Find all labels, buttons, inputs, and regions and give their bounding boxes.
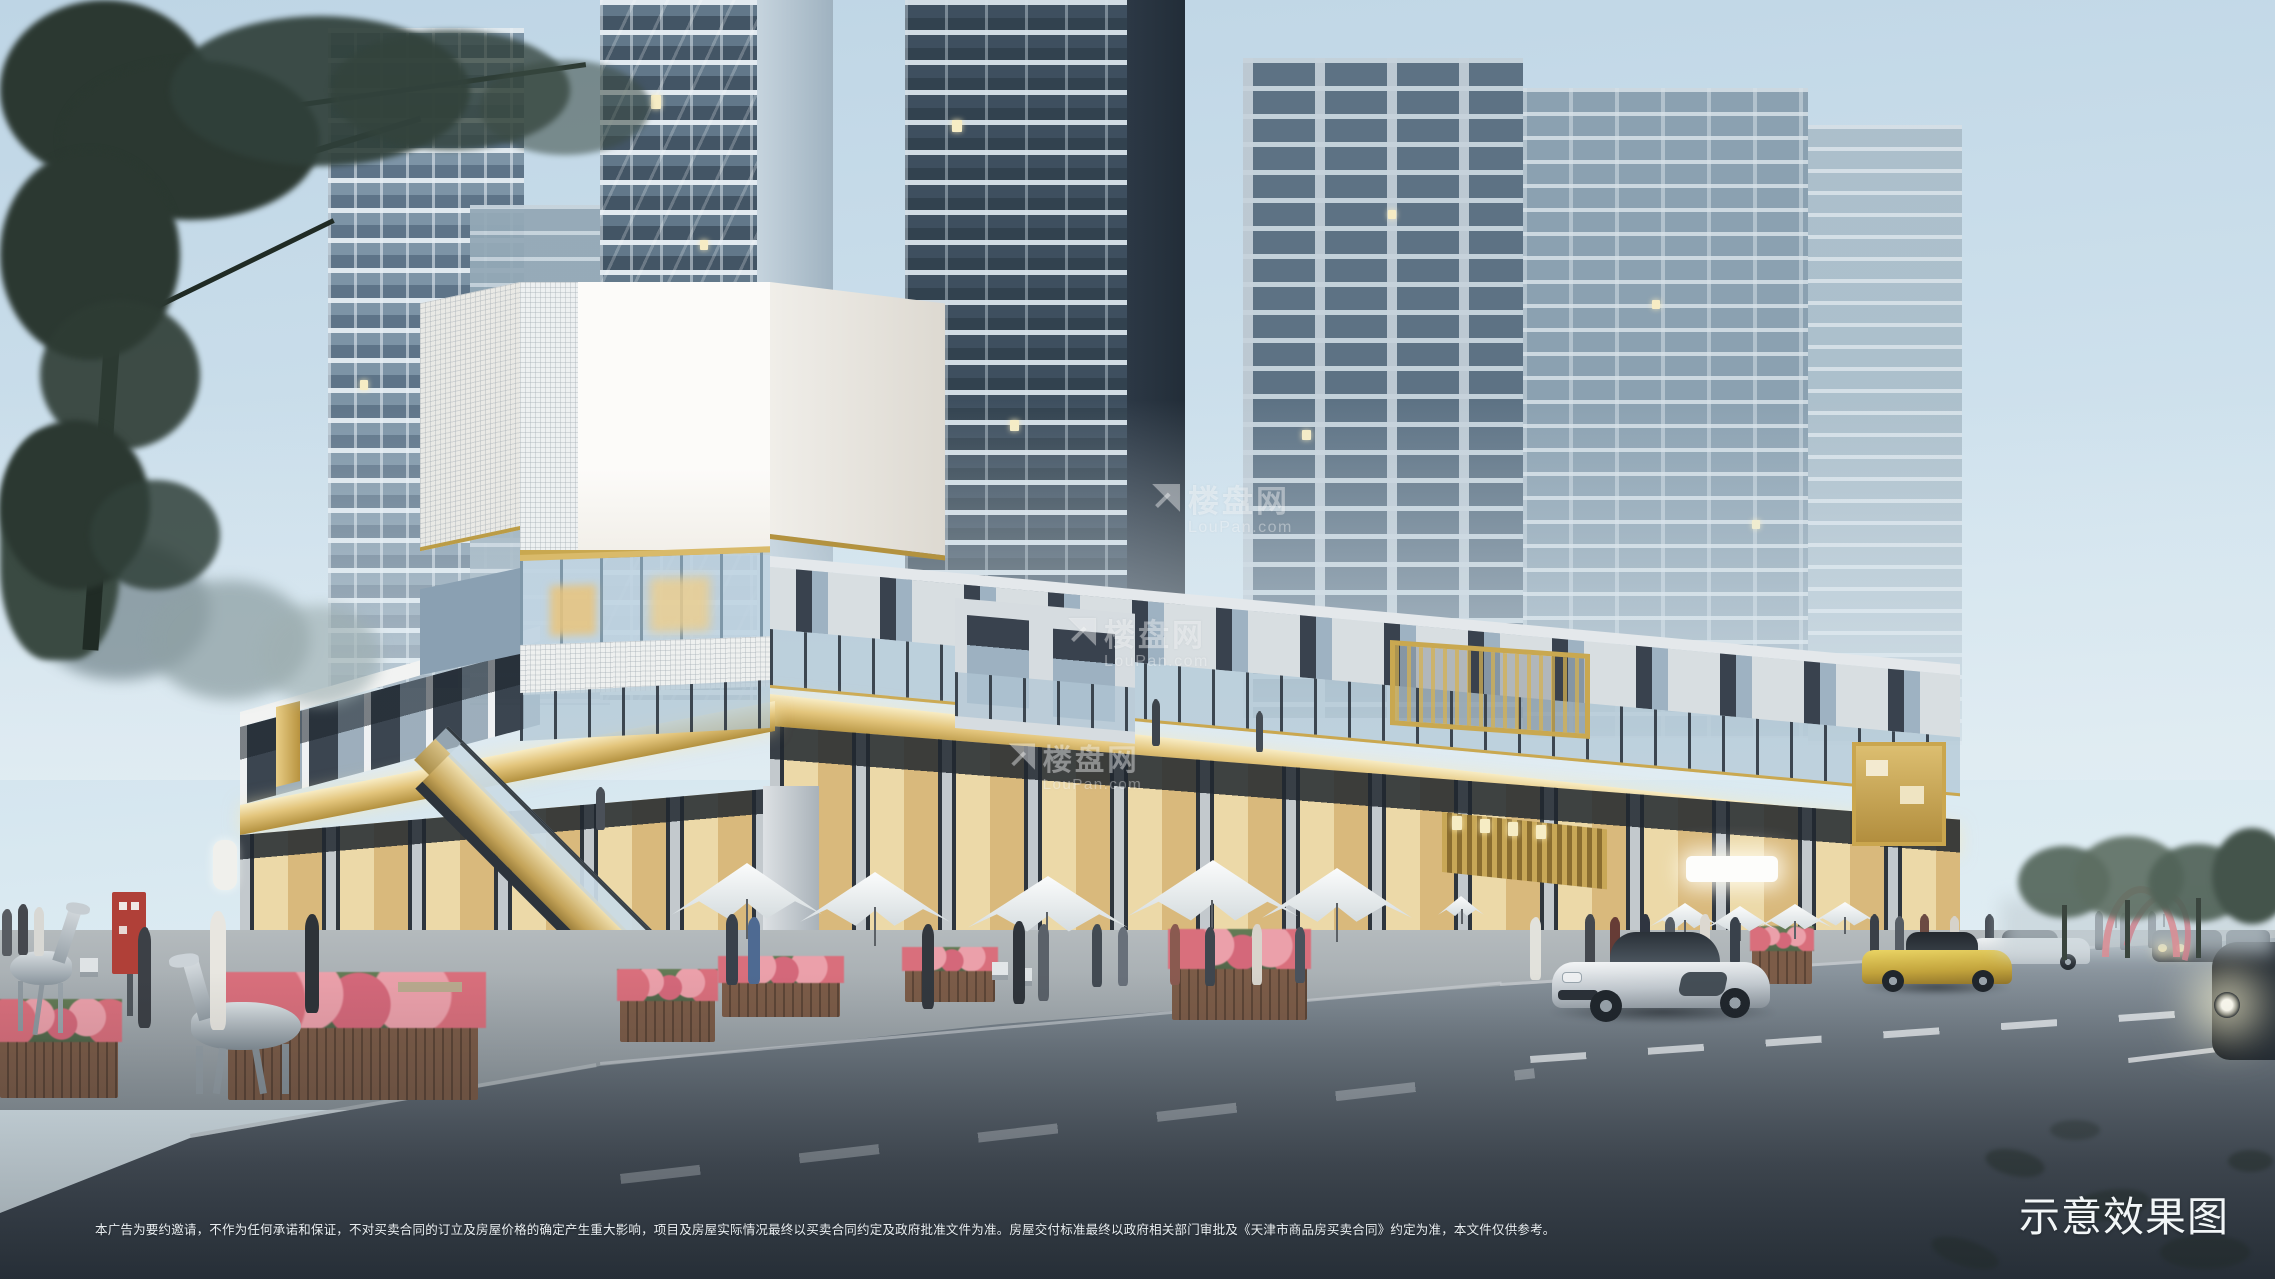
- patio-umbrella: [1438, 896, 1484, 920]
- watermark: 楼盘网 LouPan.com: [1104, 620, 1209, 670]
- deer-sculpture: [2, 893, 102, 1038]
- leaf-shadow: [2050, 1120, 2100, 1140]
- car-side-intake: [1677, 972, 1728, 996]
- deer-leg: [252, 1048, 267, 1095]
- lit-window: [952, 120, 962, 132]
- deer-leg: [196, 1046, 203, 1094]
- escalator-rider: [596, 788, 605, 830]
- trash-bin: [1478, 965, 1506, 1017]
- deer-leg: [213, 1048, 226, 1095]
- tree-trunk: [2196, 898, 2201, 958]
- render-type-label: 示意效果图: [2019, 1183, 2229, 1243]
- silver-supercar: [1552, 928, 1770, 1024]
- flower-planter: [722, 975, 840, 1017]
- white-volume-right-face: [770, 282, 945, 560]
- person: [34, 908, 44, 956]
- person: [1530, 918, 1541, 980]
- tree-canopy: [90, 480, 220, 590]
- person: [1295, 928, 1305, 983]
- person: [726, 915, 738, 985]
- mesh-texture: [420, 282, 520, 547]
- person: [18, 905, 28, 955]
- warm-interior-glow: [550, 584, 596, 636]
- person-on-terrace: [1152, 700, 1160, 746]
- lit-sign: [1900, 786, 1924, 804]
- architectural-rendering: 楼盘网 LouPan.com 楼盘网 LouPan.com 楼盘网 LouPan…: [0, 0, 2275, 1279]
- deer-leg: [32, 983, 44, 1035]
- signpost-pole: [127, 974, 133, 1016]
- foreground-dark-car: [2208, 942, 2275, 1062]
- light-column: [213, 840, 237, 890]
- watermark: 楼盘网 LouPan.com: [1043, 745, 1143, 793]
- flower-planter: [905, 964, 995, 1002]
- watermark-domain: LouPan.com: [1104, 654, 1209, 670]
- loupan-logo-icon: [1010, 743, 1035, 768]
- lit-sign: [1866, 760, 1888, 776]
- mesh-texture: [520, 282, 578, 550]
- person: [305, 915, 319, 1013]
- car-headlight: [1562, 972, 1582, 983]
- bench: [398, 982, 462, 992]
- car-wheel: [1590, 990, 1622, 1022]
- watermark-name: 楼盘网: [1104, 620, 1209, 651]
- flower-planter: [620, 992, 715, 1042]
- deer-sculpture: [140, 962, 315, 1094]
- lit-window: [1388, 210, 1396, 219]
- loupan-logo-icon: [1154, 484, 1180, 510]
- lit-sign: [1536, 825, 1546, 839]
- car-wheel: [1720, 988, 1750, 1018]
- person: [2, 910, 12, 956]
- flower-planter: [0, 1030, 118, 1098]
- deer-neck: [52, 910, 80, 963]
- sign-glyph: [119, 902, 127, 910]
- watermark-domain: LouPan.com: [1043, 778, 1143, 793]
- person: [922, 925, 934, 1009]
- watermark: 楼盘网 LouPan.com: [1188, 486, 1293, 536]
- tree-canopy: [480, 60, 650, 155]
- leaf-shadow: [2228, 1150, 2273, 1172]
- tree-trunk: [2062, 905, 2067, 960]
- lit-sign: [1480, 819, 1490, 833]
- tree-trunk: [2125, 900, 2130, 958]
- person: [1038, 925, 1049, 1001]
- warm-interior-glow: [650, 576, 710, 632]
- yellow-sports-car: [1862, 930, 2012, 994]
- person: [1092, 925, 1102, 987]
- lit-window: [700, 240, 708, 250]
- watermark-name: 楼盘网: [1188, 486, 1293, 517]
- watermark-domain: LouPan.com: [1188, 520, 1293, 536]
- white-volume-front: [520, 282, 770, 555]
- person: [1252, 925, 1262, 985]
- patio-umbrella: [1262, 868, 1412, 932]
- flower-planter: [1172, 958, 1307, 1020]
- watermark-name: 楼盘网: [1043, 745, 1143, 774]
- deer-leg: [282, 1044, 289, 1094]
- car-headlight-glow: [2214, 992, 2240, 1018]
- loupan-logo-icon: [1070, 618, 1096, 644]
- lit-sign: [1508, 822, 1518, 836]
- hazy-tree: [260, 605, 380, 705]
- lit-window: [360, 380, 368, 390]
- sign-glyph: [119, 926, 127, 934]
- disclaimer-text: 本广告为要约邀请，不作为任何承诺和保证，不对买卖合同的订立及房屋价格的确定产生重…: [95, 1219, 1556, 1238]
- person: [138, 928, 151, 1028]
- deer-leg: [18, 981, 23, 1031]
- person-on-terrace: [1256, 712, 1263, 752]
- sign-glyph: [131, 902, 139, 910]
- person: [1205, 928, 1215, 986]
- person: [1013, 922, 1025, 1004]
- deer-leg: [58, 983, 63, 1033]
- car-wheel: [1972, 970, 1994, 992]
- gold-pavilion: [1852, 742, 1946, 846]
- person: [748, 918, 760, 984]
- gold-end-fin: [276, 701, 300, 787]
- lit-sign: [1452, 816, 1462, 830]
- person: [210, 912, 226, 1030]
- cafe-chair: [992, 962, 1008, 980]
- car-wheel: [1882, 970, 1904, 992]
- lit-window: [1652, 300, 1660, 309]
- lit-canopy: [1686, 856, 1778, 882]
- gold-pergola: [1390, 640, 1590, 739]
- person: [1118, 928, 1128, 986]
- lit-window: [651, 95, 661, 109]
- person: [1170, 925, 1180, 985]
- white-volume-left-face: [420, 282, 520, 551]
